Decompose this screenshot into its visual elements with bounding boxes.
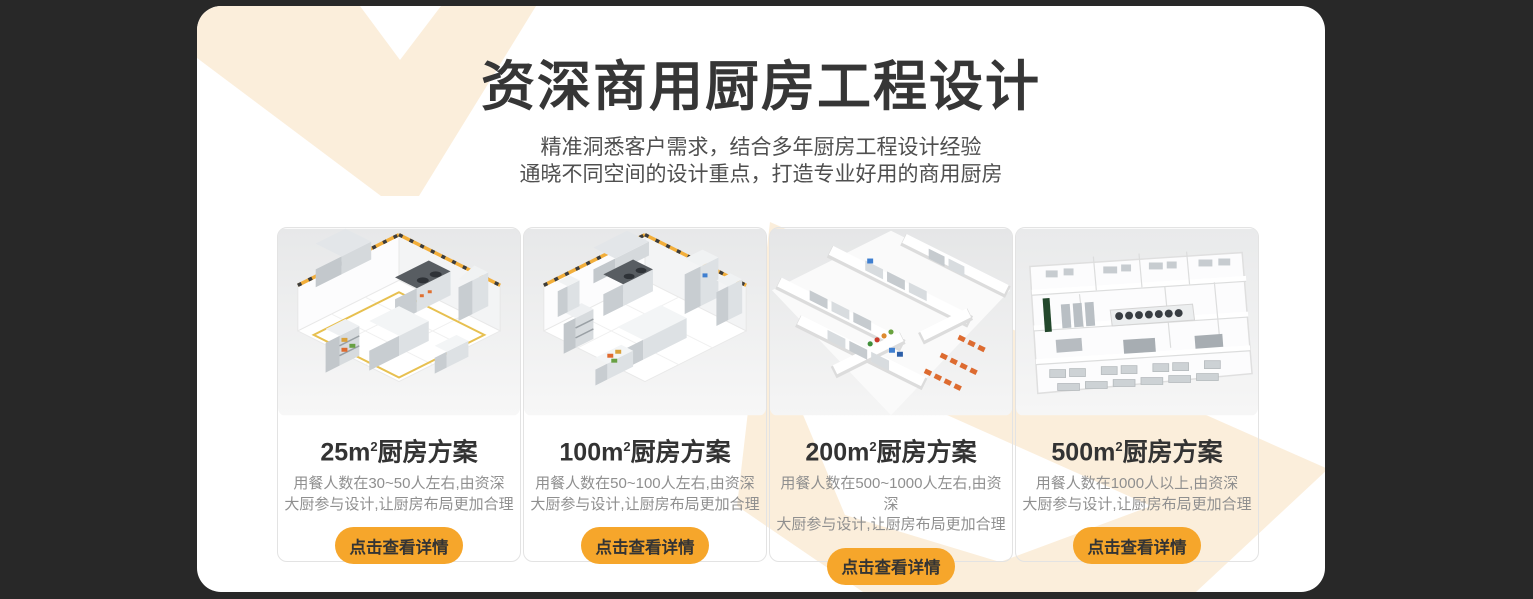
view-details-button-500m2[interactable]: 点击查看详情 (1073, 527, 1201, 564)
plan-title-200m2: 200m2厨房方案 (770, 432, 1012, 467)
view-details-button-200m2[interactable]: 点击查看详情 (827, 548, 955, 585)
kitchen-render-200m2 (770, 228, 1012, 416)
plan-description-200m2: 用餐人数在500~1000人左右,由资深大厨参与设计,让厨房布局更加合理 (774, 474, 1008, 536)
content-panel: 资深商用厨房工程设计 精准洞悉客户需求，结合多年厨房工程设计经验 通晓不同空间的… (197, 6, 1325, 592)
superscript-2: 2 (623, 439, 630, 454)
view-details-button-100m2[interactable]: 点击查看详情 (581, 527, 709, 564)
section-subtitle-line2: 通晓不同空间的设计重点，打造专业好用的商用厨房 (197, 161, 1325, 188)
plan-card-100m2[interactable]: 100m2厨房方案 用餐人数在50~100人左右,由资深大厨参与设计,让厨房布局… (523, 227, 767, 562)
superscript-2: 2 (1115, 439, 1122, 454)
kitchen-render-100m2 (524, 228, 766, 416)
plan-description-500m2: 用餐人数在1000人以上,由资深大厨参与设计,让厨房布局更加合理 (1020, 474, 1254, 515)
view-details-button-25m2[interactable]: 点击查看详情 (335, 527, 463, 564)
plan-card-25m2[interactable]: 25m2厨房方案 用餐人数在30~50人左右,由资深大厨参与设计,让厨房布局更加… (277, 227, 521, 562)
plan-card-500m2[interactable]: 500m2厨房方案 用餐人数在1000人以上,由资深大厨参与设计,让厨房布局更加… (1015, 227, 1259, 562)
plan-card-200m2[interactable]: 200m2厨房方案 用餐人数在500~1000人左右,由资深大厨参与设计,让厨房… (769, 227, 1013, 562)
plan-title-25m2: 25m2厨房方案 (278, 432, 520, 467)
superscript-2: 2 (869, 439, 876, 454)
plan-title-500m2: 500m2厨房方案 (1016, 432, 1258, 467)
kitchen-render-500m2 (1016, 228, 1258, 416)
plan-description-100m2: 用餐人数在50~100人左右,由资深大厨参与设计,让厨房布局更加合理 (528, 474, 762, 515)
plan-cards-row: 25m2厨房方案 用餐人数在30~50人左右,由资深大厨参与设计,让厨房布局更加… (277, 227, 1259, 562)
plan-description-25m2: 用餐人数在30~50人左右,由资深大厨参与设计,让厨房布局更加合理 (282, 474, 516, 515)
kitchen-render-25m2 (278, 228, 520, 416)
section-title: 资深商用厨房工程设计 (197, 58, 1325, 117)
section-subtitle-line1: 精准洞悉客户需求，结合多年厨房工程设计经验 (197, 134, 1325, 161)
superscript-2: 2 (370, 439, 377, 454)
plan-title-100m2: 100m2厨房方案 (524, 432, 766, 467)
